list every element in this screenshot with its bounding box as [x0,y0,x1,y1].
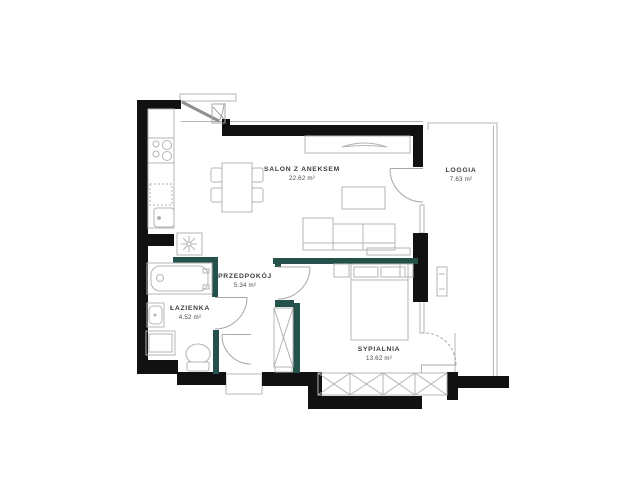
accent-salon-bedroom [273,258,418,264]
loggia-radiator [437,267,447,296]
room-area: 4.52 m² [170,314,210,321]
wall-bottom-bedroom [318,396,422,409]
room-area: 5.34 m² [218,282,272,289]
fan-icon [181,236,197,252]
floorplan-drawing [0,0,640,480]
bedroom-door [278,267,310,299]
bedroom-balcony-door [421,333,456,365]
entrance-lintel [180,94,236,101]
wall-top-right [222,125,423,136]
salon-glazing [420,205,424,233]
nightstand-left [334,264,349,277]
sofa-icon [303,218,395,250]
room-label-loggia: LOGGIA 7.63 m² [445,167,476,183]
accent-bath-top [173,257,218,263]
wall-loggia-bottom [458,376,509,388]
vent-shaft [177,233,202,255]
room-label-przedpokoj: PRZEDPOKÓJ 5.34 m² [218,273,272,289]
salon-furniture [211,136,410,255]
kitchen-counter [148,109,174,228]
bathroom-door [215,297,247,329]
window-strip [318,373,447,395]
room-name: SYPIALNIA [358,346,401,353]
hallway [274,308,293,372]
kitchen-sink-icon [154,208,174,227]
bedroom-glazing [420,300,424,333]
salon-balcony-door [390,169,423,203]
accent-hall-stub [275,258,281,267]
wall-bath-bottom [137,360,178,374]
kitchen [148,109,202,255]
washing-machine-icon [146,331,175,355]
room-name: ŁAZIENKA [170,305,210,312]
loggia-outline [428,123,497,377]
room-label-sypialnia: SYPIALNIA 13.62 m² [358,346,401,362]
wall-loggia-stub [447,372,458,400]
floorplan-canvas: SALON Z ANEKSEM 22.62 m² LOGGIA 7.63 m² … [0,0,640,480]
kitchen-appliance-dashed [150,184,172,205]
room-name: PRZEDPOKÓJ [218,273,272,280]
shaft-niche [226,374,262,394]
sideboard-bottom [367,248,410,255]
room-area: 22.62 m² [264,175,340,182]
accent-bath-right-lower [213,330,219,374]
wall-kitchen-stub [147,234,174,246]
entrance-door [182,102,225,123]
wall-right-upper [413,129,423,167]
bathtub-icon [147,263,212,294]
accent-elbow-v [293,303,300,373]
room-area: 13.62 m² [358,355,401,362]
toilet-icon [186,344,210,371]
accent-elbow-h [275,300,294,307]
kitchen-hob-icon [153,141,172,161]
room-label-lazienka: ŁAZIENKA 4.52 m² [170,305,210,321]
room-name: LOGGIA [445,167,476,174]
sideboard-top [305,136,410,153]
bed-icon [351,264,408,340]
washbasin-icon [147,303,164,327]
structure-lines [180,94,497,394]
room-name: SALON Z ANEKSEM [264,166,340,173]
dining-table-icon [211,163,263,212]
coffee-table-icon [342,187,385,209]
nightstand-right [400,264,413,277]
loggia-detail [437,267,447,296]
wardrobe-icon [274,308,293,372]
wall-right-mid [413,233,428,302]
room-area: 7.63 m² [445,176,476,183]
storage-door [222,335,251,365]
window-sill-curve [342,143,387,147]
room-label-salon: SALON Z ANEKSEM 22.62 m² [264,166,340,182]
